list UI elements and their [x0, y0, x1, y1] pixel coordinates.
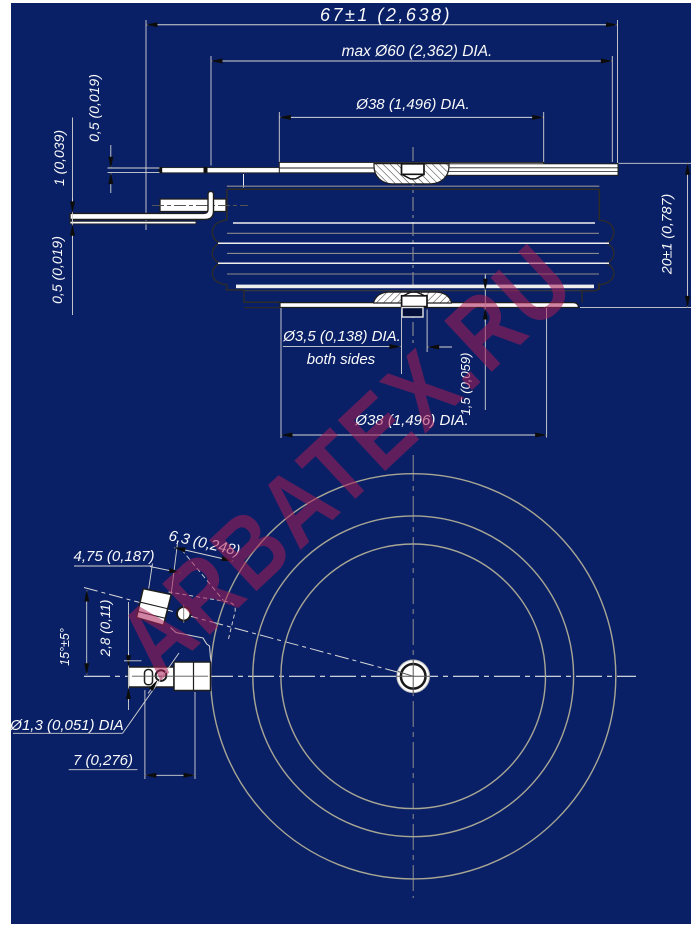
svg-text:Ø38 (1,496) DIA.: Ø38 (1,496) DIA. [355, 96, 469, 113]
svg-text:0,5 (0,019): 0,5 (0,019) [49, 236, 65, 304]
svg-text:67±1 (2,638): 67±1 (2,638) [320, 5, 452, 25]
svg-text:0,5 (0,019): 0,5 (0,019) [86, 74, 102, 142]
svg-text:max Ø60 (2,362) DIA.: max Ø60 (2,362) DIA. [342, 43, 493, 60]
svg-text:4,75 (0,187): 4,75 (0,187) [74, 548, 155, 565]
svg-text:1 (0,039): 1 (0,039) [51, 130, 67, 186]
svg-text:20±1 (0,787): 20±1 (0,787) [660, 194, 676, 275]
svg-text:15°±5°: 15°±5° [58, 628, 72, 666]
svg-text:Ø1,3 (0,051) DIA: Ø1,3 (0,051) DIA [9, 717, 123, 734]
svg-text:Ø3,5 (0,138) DIA.: Ø3,5 (0,138) DIA. [282, 328, 401, 345]
svg-text:7 (0,276): 7 (0,276) [73, 752, 133, 769]
